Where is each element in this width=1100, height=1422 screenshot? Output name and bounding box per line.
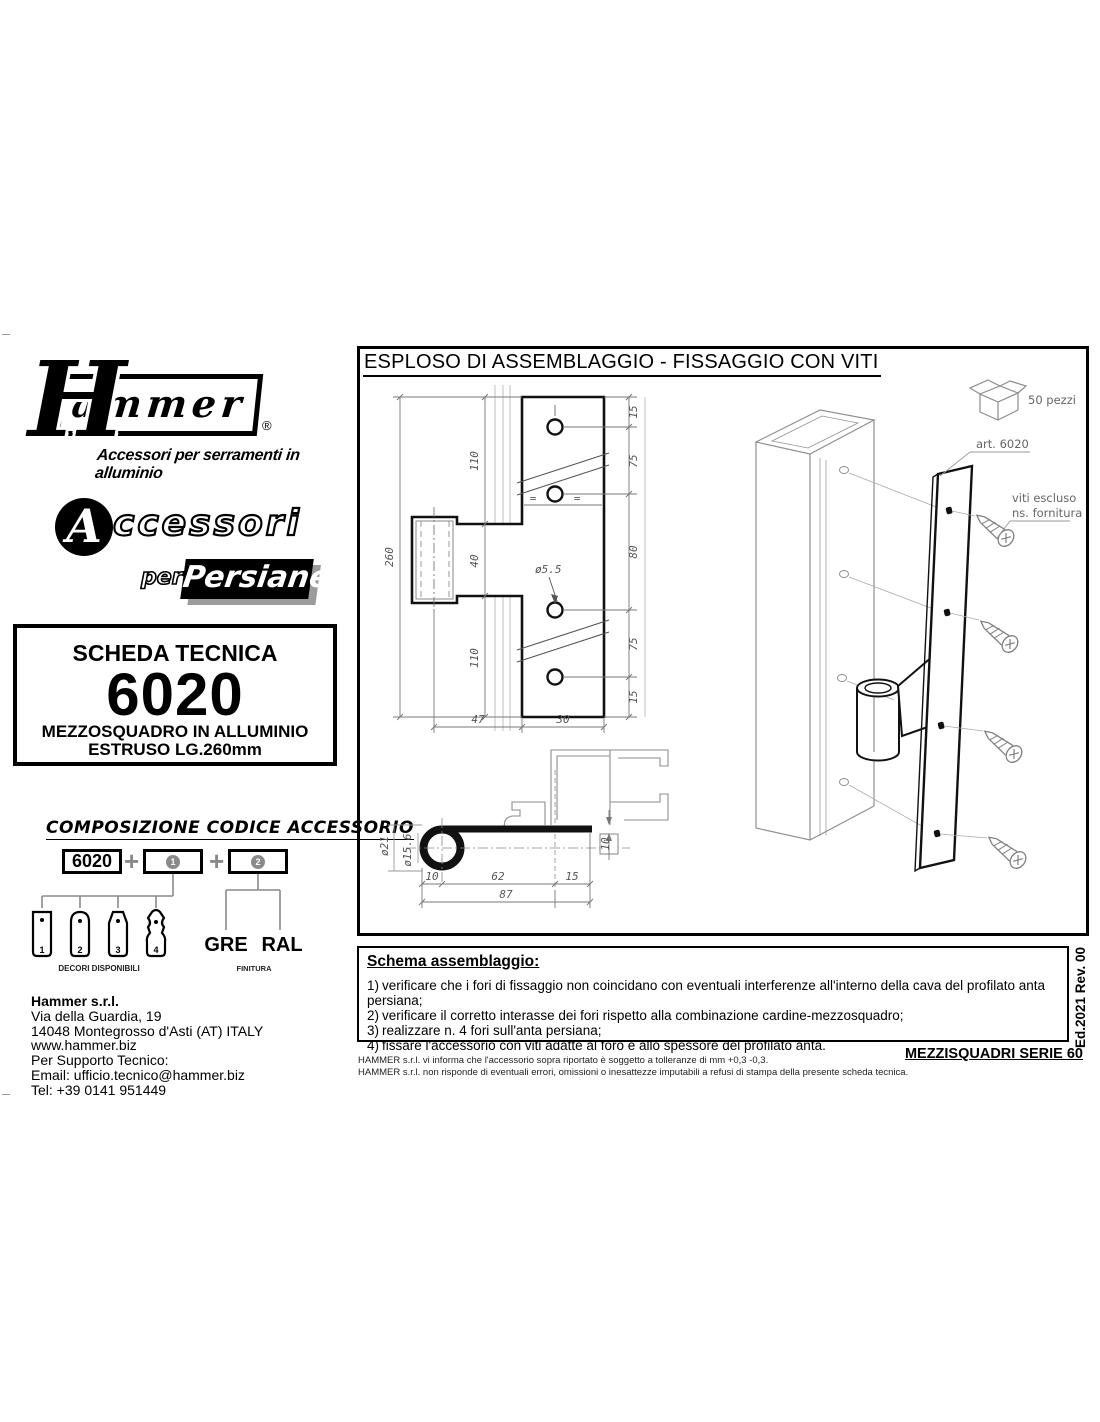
tech-card-desc2: ESTRUSO LG.260mm bbox=[17, 741, 333, 759]
dim-110-bottom: 110 bbox=[468, 648, 481, 668]
dim-30: 30 bbox=[555, 713, 570, 726]
step-text: fissare l'accessorio con viti adatte al … bbox=[382, 1038, 826, 1053]
step-text: verificare che i fori di fissaggio non c… bbox=[367, 978, 1045, 1008]
composition-diagram: 1 2 3 4 GRE RAL DECORI DISPONIBILI FINIT… bbox=[30, 874, 322, 982]
assembly-step: 2)verificare il corretto interasse dei f… bbox=[367, 1008, 1059, 1023]
company-address1: Via della Guardia, 19 bbox=[31, 1009, 263, 1024]
hammer-logo: ammer H ® Accessori per serramenti in al… bbox=[30, 362, 345, 467]
dim-total-260: 260 bbox=[383, 547, 396, 567]
decor-number-3: 3 bbox=[115, 945, 120, 955]
accessori-persiane-logo: A ccessori per Persiane bbox=[55, 495, 325, 610]
disclaimer-line2: HAMMER s.r.l. non risponde di eventuali … bbox=[358, 1067, 1018, 1079]
edition-revision: Ed.2021 Rev. 00 bbox=[1073, 947, 1088, 1048]
step-number: 3) bbox=[367, 1023, 379, 1038]
package-quantity: 50 pezzi bbox=[1028, 393, 1076, 407]
finish-option-gre: GRE bbox=[204, 934, 247, 956]
accessori-per: per bbox=[141, 565, 183, 590]
plus-sign-1: + bbox=[124, 846, 139, 877]
decor-number-1: 1 bbox=[39, 945, 44, 955]
series-label: MEZZISQUADRI SERIE 60 bbox=[815, 1046, 1083, 1062]
persiane-text: Persiane bbox=[180, 559, 313, 597]
code-box-finish: 2 bbox=[228, 849, 288, 874]
dim-75-top: 75 bbox=[627, 454, 640, 467]
dim-inner-dia: ø15.6 bbox=[401, 833, 414, 866]
decor-number-2: 2 bbox=[77, 945, 82, 955]
decor-shapes bbox=[33, 910, 165, 956]
section-dimension-labels: ø21 ø15.6 10 62 15 87 10 bbox=[378, 833, 612, 901]
dim-80: 80 bbox=[627, 545, 640, 559]
slot1-number: 1 bbox=[166, 855, 180, 869]
accessori-initial: A bbox=[55, 498, 113, 554]
assembly-steps: 1)verificare che i fori di fissaggio non… bbox=[367, 978, 1059, 1053]
screw-icon bbox=[979, 724, 1025, 765]
crop-mark-bottom bbox=[2, 1094, 10, 1095]
dim-87: 87 bbox=[499, 888, 513, 901]
accessori-rest: ccessori bbox=[113, 503, 302, 544]
registered-mark: ® bbox=[262, 418, 272, 433]
decor-number-4: 4 bbox=[153, 945, 158, 955]
finish-option-ral: RAL bbox=[261, 934, 302, 956]
slot2-number: 2 bbox=[251, 855, 265, 869]
art-label: art. 6020 bbox=[976, 437, 1029, 451]
hinge-barrel-iso bbox=[857, 680, 899, 761]
assembly-schema-box: Schema assemblaggio: 1)verificare che i … bbox=[357, 946, 1069, 1042]
step-number: 2) bbox=[367, 1008, 379, 1023]
hammer-logo-initial: H bbox=[28, 348, 126, 452]
dim-110-top: 110 bbox=[468, 451, 481, 471]
profile-holes bbox=[838, 467, 849, 786]
persiane-box: Persiane bbox=[180, 559, 314, 599]
step-text: verificare il corretto interasse dei for… bbox=[382, 1008, 904, 1023]
dim-40: 40 bbox=[468, 554, 481, 568]
code-box-decor: 1 bbox=[143, 849, 203, 874]
decor-numbers: 1 2 3 4 bbox=[39, 945, 158, 955]
code-box-base: 6020 bbox=[62, 849, 122, 874]
front-view-drawing: 260 110 40 110 15 75 80 75 15 ø5.5 = = 4… bbox=[365, 375, 670, 745]
screws-note-line1: viti escluso bbox=[1012, 491, 1076, 505]
step-number: 1) bbox=[367, 978, 379, 993]
dim-15-bottom: 15 bbox=[627, 690, 640, 703]
company-support-label: Per Supporto Tecnico: bbox=[31, 1053, 263, 1068]
decors-label: DECORI DISPONIBILI bbox=[58, 964, 139, 973]
shutter-profile-iso bbox=[756, 410, 874, 840]
assembly-step: 1)verificare che i fori di fissaggio non… bbox=[367, 978, 1059, 1008]
screws-note-line2: ns. fornitura bbox=[1012, 506, 1082, 520]
crop-mark-top bbox=[2, 334, 10, 335]
equal-mark-right: = bbox=[574, 492, 581, 505]
company-phone: Tel: +39 0141 951449 bbox=[31, 1083, 263, 1098]
package-icon bbox=[970, 380, 1026, 420]
dim-47: 47 bbox=[471, 713, 485, 726]
step-number: 4) bbox=[367, 1038, 379, 1053]
screws bbox=[971, 508, 1029, 871]
dim-thickness: 10 bbox=[599, 837, 612, 851]
tech-card-box: SCHEDA TECNICA 6020 MEZZOSQUADRO IN ALLU… bbox=[13, 624, 337, 766]
dim-75-bottom: 75 bbox=[627, 637, 640, 650]
screw-icon bbox=[971, 508, 1017, 549]
plate-bar-section bbox=[440, 826, 592, 833]
tech-card-code: 6020 bbox=[17, 667, 333, 723]
dim-10: 10 bbox=[425, 870, 439, 883]
screw-icon bbox=[983, 830, 1029, 871]
tech-sheet-page: ammer H ® Accessori per serramenti in al… bbox=[0, 0, 1100, 1422]
dim-hole-diameter: ø5.5 bbox=[535, 563, 562, 576]
company-website[interactable]: www.hammer.biz bbox=[31, 1038, 263, 1053]
shutter-profile-section bbox=[504, 750, 668, 890]
section-view-drawing: ø21 ø15.6 10 62 15 87 10 bbox=[378, 740, 693, 932]
assembly-step: 3)realizzare n. 4 fori sull'anta persian… bbox=[367, 1023, 1059, 1038]
accessori-a-icon: A bbox=[55, 498, 113, 556]
dim-outer-dia: ø21 bbox=[378, 836, 391, 856]
company-address2: 14048 Montegrosso d'Asti (AT) ITALY bbox=[31, 1024, 263, 1039]
isometric-exploded-view: art. 6020 viti escluso ns. fornitura 50 … bbox=[694, 370, 1088, 928]
dim-15: 15 bbox=[565, 870, 578, 883]
tech-card-desc1: MEZZOSQUADRO IN ALLUMINIO bbox=[17, 723, 333, 741]
assembly-heading: Schema assemblaggio: bbox=[367, 953, 1059, 971]
company-info: Hammer s.r.l. Via della Guardia, 19 1404… bbox=[31, 994, 263, 1098]
dim-15-top: 15 bbox=[627, 405, 640, 418]
plus-sign-2: + bbox=[209, 846, 224, 877]
screw-icon bbox=[975, 614, 1021, 655]
finishes-label: FINITURA bbox=[237, 964, 273, 973]
company-email[interactable]: Email: ufficio.tecnico@hammer.biz bbox=[31, 1068, 263, 1083]
equal-mark-left: = bbox=[530, 492, 537, 505]
dim-62: 62 bbox=[491, 870, 505, 883]
hammer-tagline: Accessori per serramenti in alluminio bbox=[94, 447, 347, 483]
step-text: realizzare n. 4 fori sull'anta persiana; bbox=[382, 1023, 601, 1038]
mezzosquadro-outline bbox=[412, 397, 604, 717]
company-name: Hammer s.r.l. bbox=[31, 994, 263, 1009]
